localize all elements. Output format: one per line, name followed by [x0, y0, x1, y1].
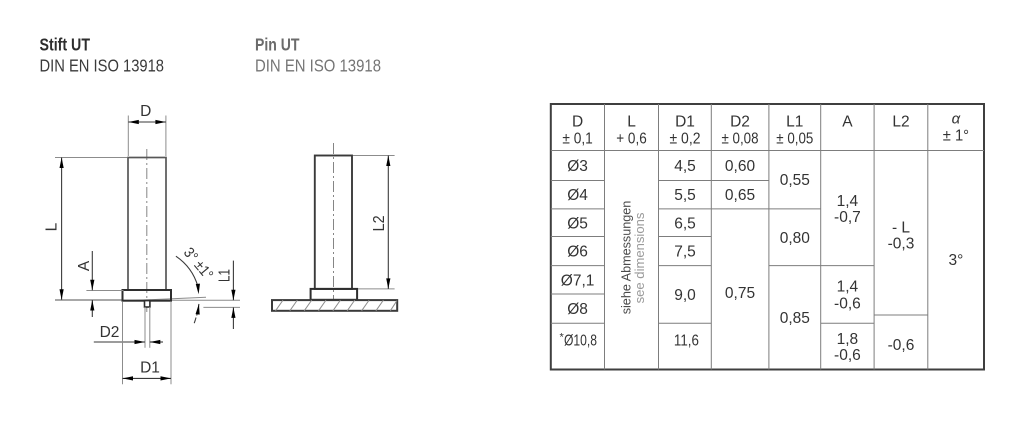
svg-text:4,5: 4,5 [674, 158, 696, 175]
svg-text:α: α [952, 111, 961, 128]
svg-text:0,75: 0,75 [725, 285, 755, 302]
svg-text:Pin UT: Pin UT [255, 34, 300, 54]
svg-text:Stift UT: Stift UT [40, 34, 91, 54]
svg-text:L2: L2 [371, 215, 388, 231]
svg-text:Ø5: Ø5 [567, 216, 588, 233]
svg-text:0,55: 0,55 [780, 172, 810, 189]
svg-text:DIN EN ISO 13918: DIN EN ISO 13918 [40, 56, 165, 76]
svg-text:Ø7,1: Ø7,1 [561, 273, 595, 290]
svg-text:-0,6: -0,6 [888, 337, 915, 354]
svg-text:A: A [842, 114, 853, 131]
svg-text:L1: L1 [217, 269, 234, 282]
svg-text:Ø3: Ø3 [567, 158, 588, 175]
svg-text:6,5: 6,5 [674, 216, 696, 233]
svg-text:± 1°: ± 1° [943, 128, 969, 145]
svg-text:DIN EN ISO 13918: DIN EN ISO 13918 [255, 56, 381, 76]
svg-text:-0,6: -0,6 [834, 347, 861, 364]
svg-text:3°: 3° [948, 252, 963, 269]
svg-text:L: L [44, 222, 61, 231]
svg-text:1,4: 1,4 [837, 193, 859, 210]
svg-text:11,6: 11,6 [674, 333, 699, 350]
svg-text:- L: - L [892, 220, 910, 237]
svg-text:1,8: 1,8 [837, 331, 859, 348]
svg-text:Ø4: Ø4 [567, 187, 588, 204]
svg-text:D1: D1 [140, 360, 160, 377]
svg-text:Ø8: Ø8 [567, 301, 588, 318]
svg-text:L2: L2 [892, 114, 909, 131]
svg-text:D: D [572, 114, 583, 131]
svg-text:0,60: 0,60 [725, 158, 756, 175]
svg-text:D2: D2 [100, 324, 120, 341]
svg-text:-0,6: -0,6 [834, 296, 861, 313]
svg-text:± 0,1: ± 0,1 [562, 131, 592, 148]
svg-text:7,5: 7,5 [674, 244, 696, 261]
svg-text:see dimensions: see dimensions [632, 212, 647, 303]
svg-text:A: A [76, 260, 93, 271]
svg-text:*: * [560, 332, 565, 344]
svg-text:± 0,05: ± 0,05 [776, 131, 813, 148]
svg-text:± 0,2: ± 0,2 [670, 131, 701, 148]
svg-text:-0,7: -0,7 [834, 209, 861, 226]
svg-text:D: D [140, 103, 151, 120]
svg-text:Ø6: Ø6 [567, 244, 588, 261]
svg-text:L1: L1 [786, 114, 803, 131]
svg-text:-0,3: -0,3 [888, 236, 915, 253]
svg-text:D2: D2 [730, 114, 750, 131]
svg-text:9,0: 9,0 [674, 287, 696, 304]
svg-text:0,85: 0,85 [780, 310, 810, 327]
svg-text:0,65: 0,65 [725, 187, 755, 204]
svg-text:1,4: 1,4 [837, 279, 859, 296]
svg-text:Ø10,8: Ø10,8 [564, 333, 597, 350]
svg-text:± 0,08: ± 0,08 [722, 131, 759, 148]
svg-text:5,5: 5,5 [674, 187, 696, 204]
svg-text:L: L [627, 114, 636, 131]
svg-text:D1: D1 [675, 114, 695, 131]
svg-text:0,80: 0,80 [780, 230, 811, 247]
svg-text:+ 0,6: + 0,6 [616, 131, 646, 148]
